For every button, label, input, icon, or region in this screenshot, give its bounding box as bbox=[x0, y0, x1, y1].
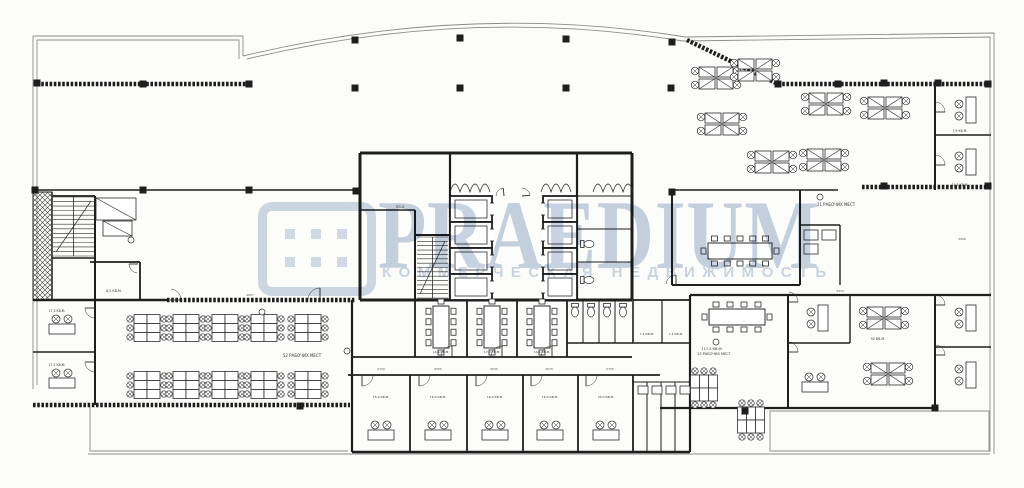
chair bbox=[477, 319, 482, 325]
desk bbox=[134, 390, 147, 399]
chair bbox=[502, 308, 507, 314]
toilet-tank bbox=[581, 241, 585, 248]
room-label: 14,9 КВ.М. bbox=[534, 350, 550, 354]
desk bbox=[212, 372, 225, 381]
chair bbox=[426, 308, 431, 314]
door-swing bbox=[531, 376, 542, 386]
chair bbox=[750, 236, 756, 241]
desk bbox=[738, 420, 747, 433]
desk bbox=[295, 390, 308, 399]
desk-bench-6 bbox=[205, 315, 245, 342]
chair bbox=[527, 329, 532, 335]
door-swing bbox=[936, 295, 945, 305]
door-swing bbox=[85, 308, 94, 318]
desk bbox=[212, 315, 225, 324]
desk bbox=[691, 388, 700, 401]
office-desk bbox=[368, 421, 394, 440]
toilet bbox=[572, 304, 579, 318]
office-desk bbox=[482, 421, 508, 440]
office-desk bbox=[802, 373, 828, 392]
chair bbox=[774, 248, 779, 254]
door-swing bbox=[129, 264, 137, 273]
office-desk bbox=[955, 97, 976, 123]
door-swing bbox=[476, 376, 487, 386]
column bbox=[563, 36, 570, 43]
column bbox=[34, 80, 41, 87]
desk bbox=[308, 372, 321, 381]
column bbox=[140, 81, 147, 88]
wardrobe-scallop bbox=[450, 184, 490, 192]
desk bbox=[295, 315, 308, 324]
desk bbox=[225, 333, 238, 342]
wardrobe-scallop bbox=[593, 184, 633, 192]
chair bbox=[713, 327, 719, 332]
desk bbox=[225, 381, 238, 390]
door-swing bbox=[936, 102, 945, 112]
desk bbox=[173, 324, 186, 333]
chair bbox=[438, 299, 444, 304]
column bbox=[669, 39, 676, 46]
chair bbox=[724, 236, 730, 241]
desk bbox=[225, 372, 238, 381]
room-label: 16,0 КВ.М. bbox=[542, 395, 558, 399]
chair bbox=[477, 340, 482, 346]
chair bbox=[527, 308, 532, 314]
desk-bench-6 bbox=[166, 315, 206, 342]
room-label: 117,4 КВ.М. bbox=[701, 347, 722, 351]
desk-bench-6 bbox=[205, 372, 245, 399]
desk bbox=[251, 333, 264, 342]
desk bbox=[147, 324, 160, 333]
chair bbox=[701, 248, 706, 254]
desk bbox=[264, 390, 277, 399]
cabinet bbox=[822, 230, 836, 240]
desk bbox=[186, 390, 199, 399]
wardrobe-scallop bbox=[541, 184, 571, 192]
toilet-bowl bbox=[584, 277, 594, 284]
chair bbox=[451, 319, 456, 325]
desk bbox=[308, 390, 321, 399]
toilet-bowl bbox=[572, 307, 579, 317]
cabinet bbox=[680, 386, 690, 394]
column bbox=[669, 189, 676, 196]
dimension-label: 3006 bbox=[958, 237, 966, 241]
table bbox=[709, 309, 765, 325]
table bbox=[433, 306, 449, 348]
toilet-bowl bbox=[584, 241, 594, 248]
desk bbox=[264, 324, 277, 333]
door-swing bbox=[308, 288, 320, 299]
room-label: 11,3 КВ.М. bbox=[952, 183, 969, 187]
desk bbox=[147, 315, 160, 324]
chair bbox=[451, 329, 456, 335]
room-label: 6,5 КВ.М. bbox=[106, 289, 122, 293]
office-desk bbox=[537, 421, 563, 440]
desk bbox=[264, 381, 277, 390]
room-label: 17,2 КВ.М. bbox=[49, 363, 66, 367]
chair bbox=[737, 236, 743, 241]
desk-bench-6 bbox=[127, 315, 167, 342]
room-label: 14,9 КВ.М. bbox=[433, 350, 449, 354]
desk bbox=[425, 430, 451, 440]
chair bbox=[426, 340, 431, 346]
meeting-table bbox=[477, 299, 507, 355]
desk bbox=[264, 333, 277, 342]
chair bbox=[724, 261, 730, 266]
door-swing bbox=[936, 155, 945, 165]
floorplan-svg: 52 РАБОЧИХ МЕСТ21 РАБОЧИХ МЕСТ117,4 КВ.М… bbox=[0, 0, 1024, 488]
door-leaf bbox=[522, 195, 530, 196]
meeting-table bbox=[701, 236, 779, 266]
room-label: 17,3 КВ.М. bbox=[49, 309, 66, 313]
office-desk bbox=[593, 421, 619, 440]
desk bbox=[147, 381, 160, 390]
cabinet bbox=[638, 386, 648, 394]
chair bbox=[727, 327, 733, 332]
chair bbox=[711, 261, 717, 266]
desk bbox=[295, 372, 308, 381]
cabinet bbox=[638, 386, 648, 394]
room-label: 21 РАБОЧИХ МЕСТ bbox=[817, 202, 856, 207]
column bbox=[775, 81, 782, 88]
cabinet bbox=[804, 244, 818, 254]
column bbox=[353, 188, 360, 195]
desk bbox=[173, 372, 186, 381]
desk bbox=[966, 362, 976, 388]
keynote-circle bbox=[259, 309, 265, 315]
facade-line bbox=[247, 27, 990, 84]
chair bbox=[767, 314, 772, 320]
desk bbox=[802, 382, 828, 392]
room-label: 7,1 КВ.М. bbox=[669, 332, 683, 336]
cabinet bbox=[666, 386, 676, 394]
toilet-tank bbox=[604, 304, 611, 308]
desk bbox=[212, 333, 225, 342]
desk bbox=[966, 97, 976, 123]
facade-line bbox=[37, 40, 239, 59]
desk bbox=[186, 315, 199, 324]
desk bbox=[186, 372, 199, 381]
desk bbox=[251, 324, 264, 333]
chair bbox=[741, 327, 747, 332]
toilet-tank bbox=[572, 304, 579, 308]
chair bbox=[552, 340, 557, 346]
office-desk bbox=[425, 421, 451, 440]
toilet bbox=[620, 304, 627, 318]
column bbox=[563, 85, 570, 92]
room-label: 16,0 КВ.М. bbox=[430, 395, 446, 399]
room-label: 7,9 КВ.М. bbox=[953, 129, 968, 133]
desk bbox=[691, 375, 700, 388]
desk bbox=[251, 390, 264, 399]
room-label: 52 РАБОЧИХ МЕСТ bbox=[283, 353, 322, 358]
column bbox=[742, 408, 749, 415]
desk bbox=[186, 324, 199, 333]
desk bbox=[134, 381, 147, 390]
office-desk bbox=[49, 369, 75, 388]
column bbox=[985, 81, 992, 88]
desk bbox=[173, 315, 186, 324]
facade-line bbox=[90, 407, 348, 451]
desk-cluster-4 bbox=[697, 113, 747, 135]
column bbox=[935, 80, 942, 87]
dimension-label: 3434 bbox=[836, 289, 844, 293]
door-swing bbox=[789, 292, 798, 302]
room-label: 92 КВ.М. bbox=[871, 337, 886, 341]
chair bbox=[755, 302, 761, 307]
desk-cluster-4 bbox=[747, 151, 797, 173]
facade-line bbox=[33, 36, 243, 56]
column bbox=[457, 35, 464, 42]
desk bbox=[700, 388, 709, 401]
dimension-label: 4070 bbox=[545, 367, 553, 371]
keynote-circle bbox=[713, 339, 719, 345]
column bbox=[246, 81, 253, 88]
toilet bbox=[581, 277, 595, 284]
cabinet bbox=[680, 386, 690, 394]
chair bbox=[426, 329, 431, 335]
toilet-tank bbox=[620, 304, 627, 308]
office-desk bbox=[955, 149, 976, 175]
desk bbox=[308, 333, 321, 342]
column bbox=[932, 405, 939, 412]
desk bbox=[747, 420, 756, 433]
desk bbox=[264, 372, 277, 381]
desk-bench-6 bbox=[244, 372, 284, 399]
desk bbox=[251, 372, 264, 381]
desk bbox=[49, 324, 75, 334]
desk bbox=[186, 381, 199, 390]
desk bbox=[593, 430, 619, 440]
chair bbox=[489, 299, 495, 304]
dimension-label: 5756 bbox=[606, 367, 614, 371]
column bbox=[352, 37, 359, 44]
desk bbox=[818, 305, 828, 331]
room-label: ПС-5 bbox=[396, 205, 405, 209]
built-in-unit bbox=[103, 221, 132, 236]
chair bbox=[502, 329, 507, 335]
dimension-label: 4035 bbox=[490, 367, 498, 371]
chair bbox=[552, 308, 557, 314]
meeting-table bbox=[527, 299, 557, 355]
desk-cluster-4 bbox=[859, 307, 909, 329]
chair bbox=[477, 308, 482, 314]
room-label: 24,0 КВ.М. bbox=[598, 395, 614, 399]
column bbox=[881, 183, 888, 190]
toilet bbox=[604, 304, 611, 318]
chair bbox=[737, 261, 743, 266]
desk-cluster-4 bbox=[863, 363, 913, 385]
chair bbox=[741, 302, 747, 307]
desk bbox=[173, 381, 186, 390]
column bbox=[668, 85, 675, 92]
desk bbox=[225, 315, 238, 324]
toilet-bowl bbox=[620, 307, 627, 317]
chair bbox=[763, 261, 769, 266]
meeting-table bbox=[702, 302, 772, 332]
desk bbox=[134, 324, 147, 333]
desk bbox=[295, 333, 308, 342]
chair bbox=[451, 340, 456, 346]
desk bbox=[756, 420, 765, 433]
desk-cluster-4 bbox=[799, 149, 849, 171]
facade-line bbox=[770, 411, 989, 451]
desk bbox=[147, 372, 160, 381]
cabinet bbox=[804, 244, 818, 254]
office-desk bbox=[807, 305, 828, 331]
desk bbox=[308, 315, 321, 324]
chair bbox=[711, 236, 717, 241]
desk bbox=[295, 381, 308, 390]
room-label: 17,0 КВ.М. bbox=[484, 350, 500, 354]
chair bbox=[527, 319, 532, 325]
desk bbox=[212, 390, 225, 399]
built-in-unit bbox=[96, 198, 136, 220]
toilet-bowl bbox=[588, 307, 595, 317]
cabinet bbox=[822, 230, 836, 240]
column bbox=[140, 187, 147, 194]
door-swing bbox=[496, 188, 503, 196]
cabinet bbox=[652, 386, 662, 394]
chair bbox=[552, 319, 557, 325]
desk bbox=[147, 390, 160, 399]
desk-cluster-4 bbox=[860, 97, 910, 119]
desk bbox=[186, 333, 199, 342]
desk bbox=[49, 378, 75, 388]
column bbox=[985, 183, 992, 190]
desk bbox=[251, 381, 264, 390]
desk bbox=[147, 333, 160, 342]
chair bbox=[763, 236, 769, 241]
chair bbox=[502, 319, 507, 325]
table bbox=[484, 306, 500, 348]
desk bbox=[134, 333, 147, 342]
desk-bench-6 bbox=[738, 400, 765, 440]
toilet-tank bbox=[588, 304, 595, 308]
office-desk bbox=[955, 305, 976, 331]
chair bbox=[527, 340, 532, 346]
desk bbox=[295, 324, 308, 333]
door-swing bbox=[419, 376, 430, 386]
meeting-table bbox=[426, 299, 456, 355]
cabinet bbox=[804, 230, 818, 240]
toilet bbox=[588, 304, 595, 318]
door-swing bbox=[362, 376, 373, 386]
desk bbox=[966, 305, 976, 331]
door-swing bbox=[586, 376, 597, 386]
table bbox=[708, 243, 772, 259]
column bbox=[352, 85, 359, 92]
cabinet bbox=[666, 386, 676, 394]
chair bbox=[502, 340, 507, 346]
office-desk bbox=[49, 315, 75, 334]
toilet bbox=[581, 241, 595, 248]
chair bbox=[755, 327, 761, 332]
desk-bench-6 bbox=[166, 372, 206, 399]
chair bbox=[426, 319, 431, 325]
desk bbox=[173, 333, 186, 342]
column bbox=[32, 187, 39, 194]
desk-cluster-4 bbox=[801, 93, 851, 115]
keynote-circle bbox=[817, 194, 823, 200]
desk-bench-6 bbox=[288, 315, 328, 342]
keynote-circle bbox=[128, 237, 134, 243]
desk bbox=[264, 315, 277, 324]
desk bbox=[225, 324, 238, 333]
desk bbox=[134, 372, 147, 381]
desk-bench-6 bbox=[127, 372, 167, 399]
desk bbox=[537, 430, 563, 440]
desk-bench-6 bbox=[244, 315, 284, 342]
desk bbox=[308, 381, 321, 390]
chair bbox=[552, 329, 557, 335]
chair bbox=[539, 299, 545, 304]
desk bbox=[756, 407, 765, 420]
desk bbox=[134, 315, 147, 324]
desk bbox=[212, 381, 225, 390]
desk bbox=[482, 430, 508, 440]
floor-plan-page: 52 РАБОЧИХ МЕСТ21 РАБОЧИХ МЕСТ117,4 КВ.М… bbox=[0, 0, 1024, 488]
shaft-void bbox=[33, 192, 52, 300]
table bbox=[534, 306, 550, 348]
desk bbox=[966, 149, 976, 175]
desk-bench-6 bbox=[288, 372, 328, 399]
toilet-bowl bbox=[604, 307, 611, 317]
desk bbox=[368, 430, 394, 440]
door-swing bbox=[85, 362, 94, 372]
door-leaf bbox=[503, 188, 504, 196]
toilet-tank bbox=[581, 277, 585, 284]
dimension-label: 6055 bbox=[434, 367, 442, 371]
desk bbox=[212, 324, 225, 333]
desk bbox=[173, 390, 186, 399]
desk-bench-6 bbox=[691, 368, 718, 408]
column bbox=[457, 85, 464, 92]
room-label: 16,0 КВ.М. bbox=[487, 395, 503, 399]
desk bbox=[700, 375, 709, 388]
column bbox=[881, 80, 888, 87]
room-label: 15,2 КВ.М. bbox=[373, 395, 389, 399]
desk bbox=[709, 388, 718, 401]
desk bbox=[225, 390, 238, 399]
room-label: 7,1 КВ.М. bbox=[640, 332, 654, 336]
cabinet bbox=[804, 230, 818, 240]
column bbox=[246, 187, 253, 194]
chair bbox=[702, 314, 707, 320]
chair bbox=[750, 261, 756, 266]
chair bbox=[727, 302, 733, 307]
dimension-label: 4657 bbox=[246, 293, 254, 297]
cabinet bbox=[652, 386, 662, 394]
keynote-circle bbox=[344, 348, 350, 354]
door-swing bbox=[522, 188, 530, 195]
desk bbox=[709, 375, 718, 388]
chair bbox=[713, 302, 719, 307]
chair bbox=[451, 308, 456, 314]
room-label: 23 РАБОЧИХ МЕСТ bbox=[697, 352, 731, 356]
office-desk bbox=[955, 362, 976, 388]
column bbox=[835, 81, 842, 88]
dimension-label: 4150 bbox=[377, 367, 385, 371]
desk bbox=[251, 315, 264, 324]
desk bbox=[308, 324, 321, 333]
chair bbox=[477, 329, 482, 335]
column bbox=[297, 403, 304, 410]
